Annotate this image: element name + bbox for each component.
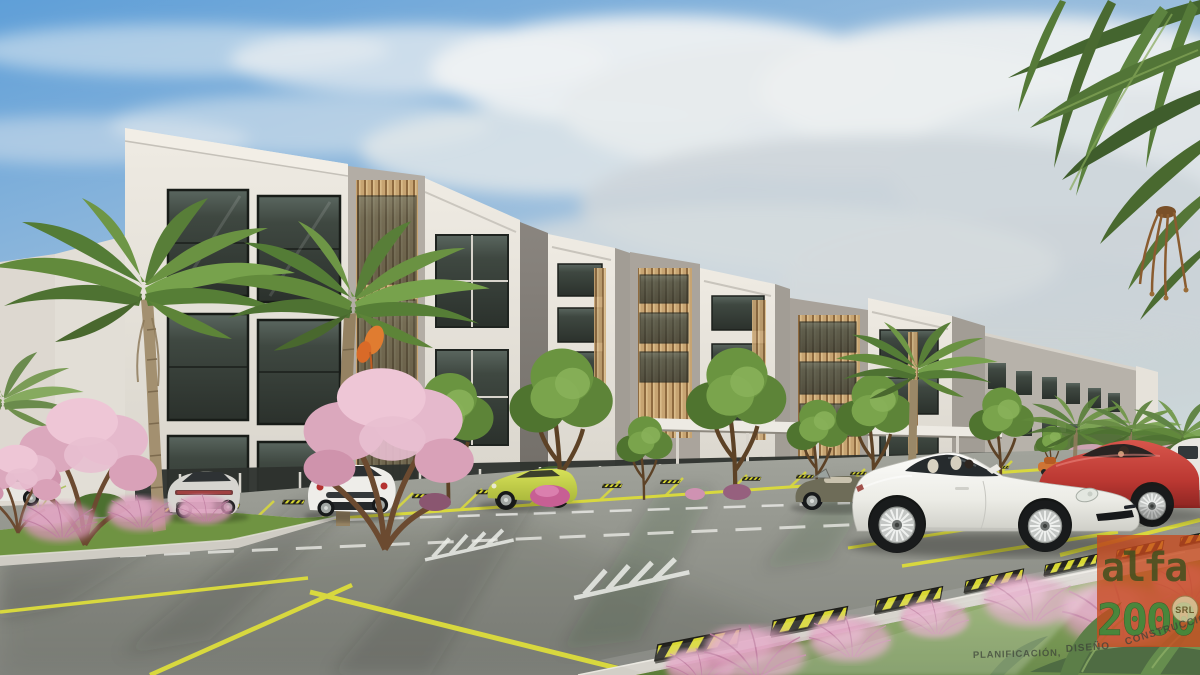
architectural-rendering: alfa 2000 SRL PLANIFICACIÓN, DISEÑO CONS…: [0, 0, 1200, 675]
tagline-planificacion: PLANIFICACIÓN,: [973, 647, 1062, 661]
logo-badge-text: SRL: [1175, 605, 1195, 615]
logo-text-alfa: alfa: [1101, 545, 1186, 591]
